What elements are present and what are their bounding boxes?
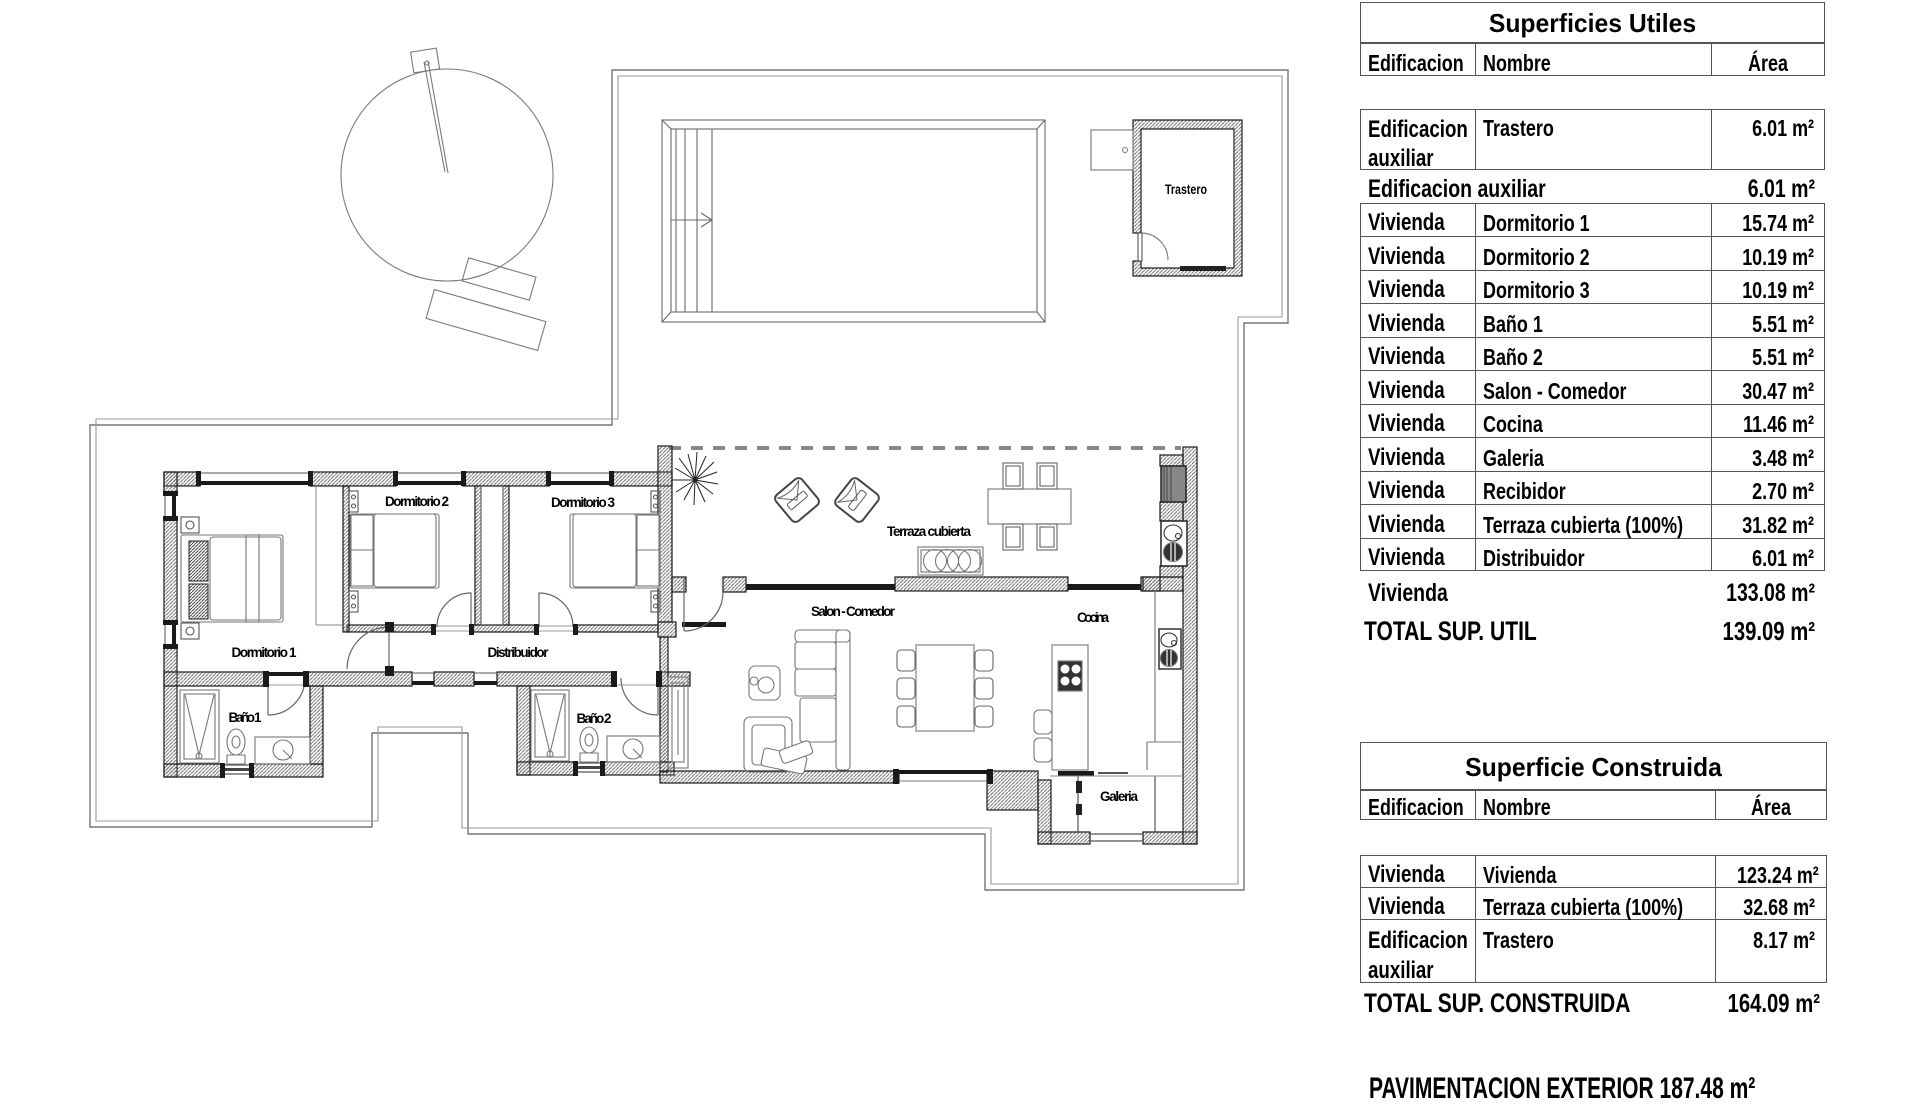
svg-text:Galeria: Galeria [1100, 789, 1138, 804]
svg-text:Dormitorio 2: Dormitorio 2 [385, 494, 449, 509]
svg-text:Baño 2: Baño 2 [577, 711, 612, 726]
svg-text:Salon - Comedor: Salon - Comedor [811, 604, 896, 619]
svg-text:Dormitorio 3: Dormitorio 3 [551, 495, 615, 510]
svg-text:Cocina: Cocina [1077, 610, 1109, 625]
svg-text:Terraza cubierta: Terraza cubierta [887, 524, 971, 539]
svg-text:Trastero: Trastero [1165, 182, 1207, 197]
svg-text:Baño 1: Baño 1 [229, 710, 262, 725]
svg-text:Distribuidor: Distribuidor [488, 645, 550, 660]
svg-text:Dormitorio 1: Dormitorio 1 [232, 645, 297, 660]
